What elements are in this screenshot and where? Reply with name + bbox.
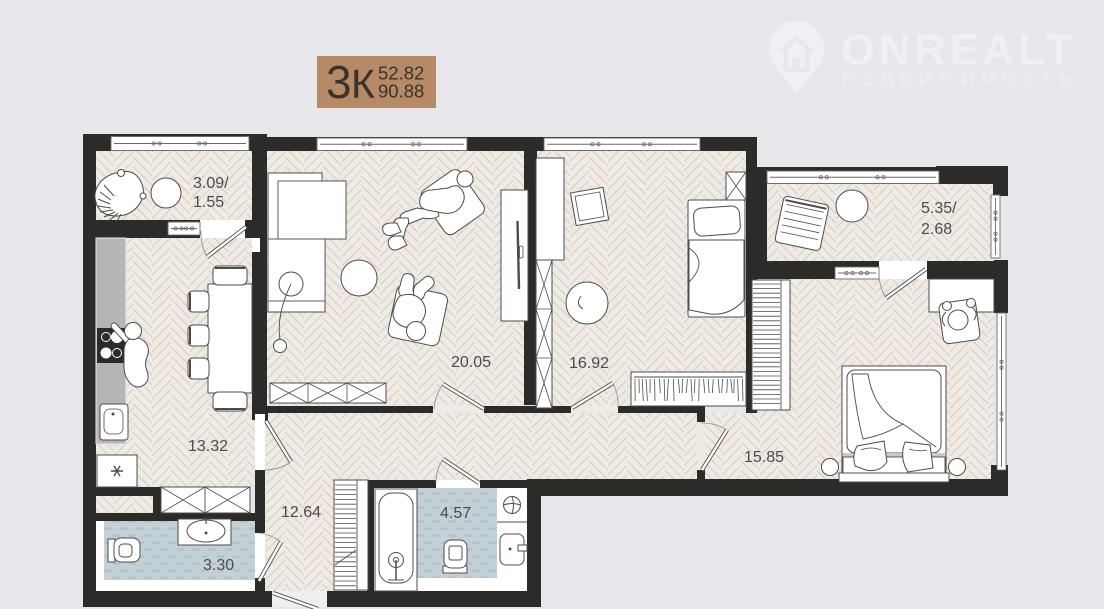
svg-text:1.55: 1.55 [193,194,224,211]
svg-text:К: К [351,61,375,107]
svg-text:90.88: 90.88 [378,81,424,102]
svg-text:5.35/: 5.35/ [921,200,957,217]
svg-text:3.30: 3.30 [203,557,234,574]
svg-text:НЕДВИЖИМОСТЬ: НЕДВИЖИМОСТЬ [842,68,1078,90]
svg-text:12.64: 12.64 [281,504,321,521]
svg-text:2.68: 2.68 [921,221,952,238]
svg-text:16.92: 16.92 [569,355,609,372]
svg-text:20.05: 20.05 [451,354,491,371]
svg-text:3.09/: 3.09/ [193,175,229,192]
svg-text:4.57: 4.57 [440,505,471,522]
svg-text:3: 3 [326,56,352,108]
svg-text:15.85: 15.85 [744,449,784,466]
svg-text:13.32: 13.32 [188,438,228,455]
